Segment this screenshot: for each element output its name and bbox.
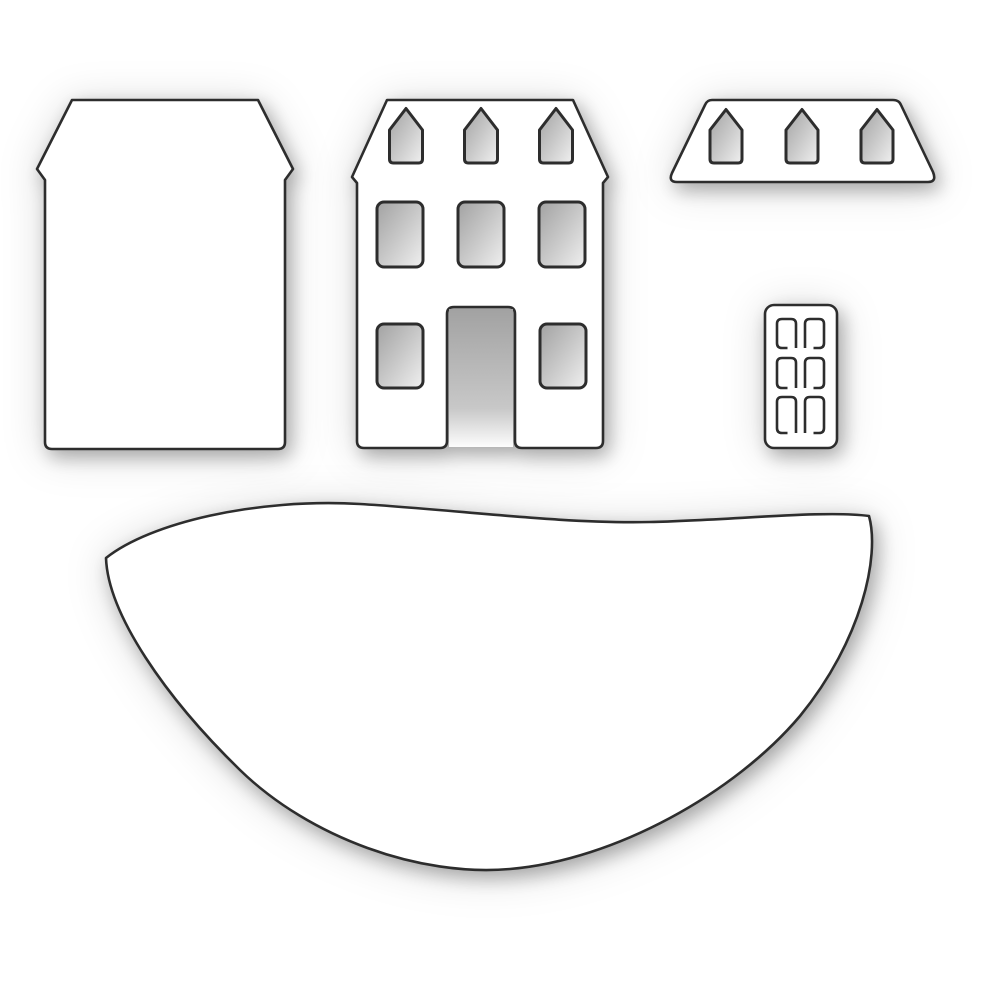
hill-base-die bbox=[106, 503, 872, 870]
upper-window-icon bbox=[458, 202, 504, 267]
house-body-outline bbox=[37, 100, 293, 449]
upper-window-icon bbox=[539, 202, 585, 267]
door-opening-shadow bbox=[449, 309, 513, 447]
house-body-die bbox=[37, 100, 293, 449]
door-panel-die bbox=[765, 305, 837, 448]
product-image-canvas bbox=[0, 0, 1000, 1000]
hill-base-outline bbox=[106, 503, 872, 870]
lower-window-icon bbox=[377, 324, 423, 388]
roof-strip-die bbox=[671, 100, 934, 182]
house-facade-die bbox=[352, 100, 608, 448]
lower-window-icon bbox=[540, 324, 586, 388]
upper-window-icon bbox=[377, 202, 423, 267]
die-set-illustration bbox=[0, 0, 1000, 1000]
